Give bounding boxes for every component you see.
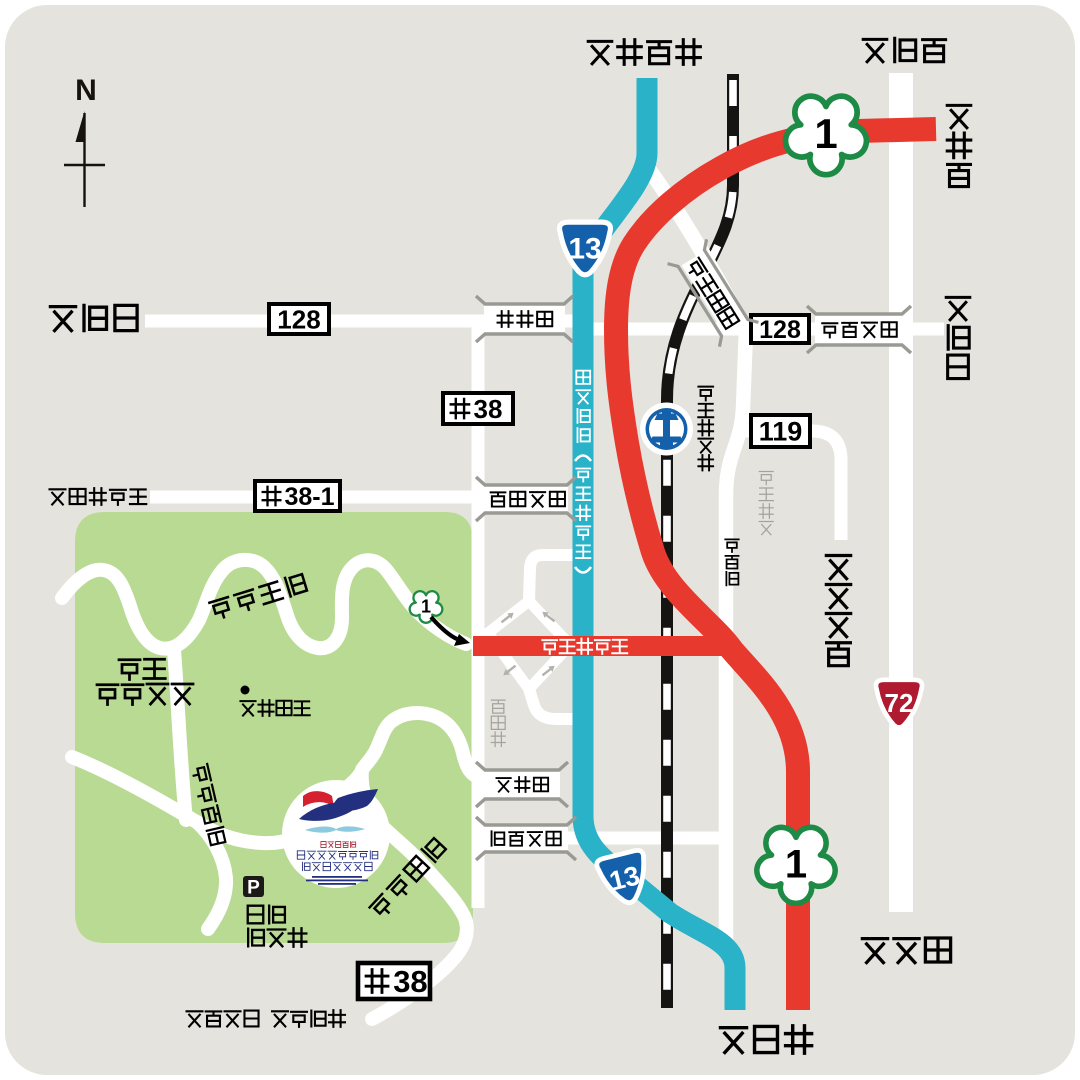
svg-text:1: 1 <box>785 842 807 886</box>
svg-text:P: P <box>247 878 260 899</box>
svg-text:119: 119 <box>759 417 803 447</box>
svg-text:128: 128 <box>759 316 801 344</box>
svg-text:38: 38 <box>393 964 427 999</box>
svg-text:N: N <box>75 74 97 107</box>
svg-text:128: 128 <box>277 304 320 334</box>
svg-text:38-1: 38-1 <box>285 483 335 511</box>
svg-text:1: 1 <box>421 597 431 617</box>
svg-text:13: 13 <box>568 232 601 265</box>
svg-text:1: 1 <box>814 110 837 157</box>
svg-text:38: 38 <box>474 394 503 424</box>
svg-text:72: 72 <box>885 688 914 718</box>
